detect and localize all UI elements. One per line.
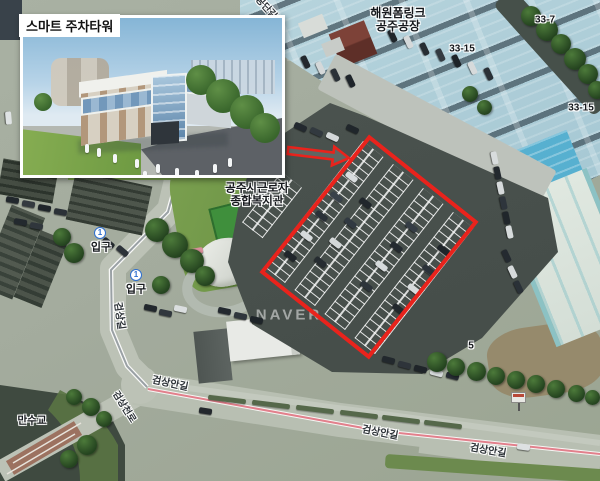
entrance-2-marker: 1 xyxy=(130,269,142,281)
person-figure xyxy=(195,170,199,178)
label-entrance-1: 입구 xyxy=(91,242,111,255)
inset-title: 스마트 주차타워 xyxy=(19,14,120,37)
person-figure xyxy=(143,171,147,178)
person-figure xyxy=(113,154,117,163)
person-figure xyxy=(228,158,232,167)
person-figure xyxy=(156,164,160,173)
person-figure xyxy=(97,148,101,157)
person-figure xyxy=(85,144,89,153)
entrance-1-marker: 1 xyxy=(94,227,106,239)
tower-entrance xyxy=(151,121,179,145)
inset-rendering xyxy=(20,15,285,178)
label-lot-5: 5 xyxy=(468,340,474,353)
label-parcel-33-15-a: 33-15 xyxy=(449,43,475,56)
person-figure xyxy=(213,164,217,173)
label-parcel-33-7: 33-7 xyxy=(535,14,555,27)
label-factory: 해원폼링크 공주공장 xyxy=(370,7,425,33)
tree xyxy=(250,113,280,143)
label-parcel-33-15-b: 33-15 xyxy=(568,102,594,115)
label-entrance-2: 입구 xyxy=(126,284,146,297)
person-figure xyxy=(175,168,179,177)
label-bridge: 만수교 xyxy=(18,415,47,428)
person-figure xyxy=(135,159,139,168)
aerial-map: NAVER 해원폼링크 공주공장 공주시근로자 종합복지관 33-15 33-7… xyxy=(0,0,600,481)
label-welfare-center: 공주시근로자 종합복지관 xyxy=(225,183,288,208)
tree xyxy=(34,93,52,111)
